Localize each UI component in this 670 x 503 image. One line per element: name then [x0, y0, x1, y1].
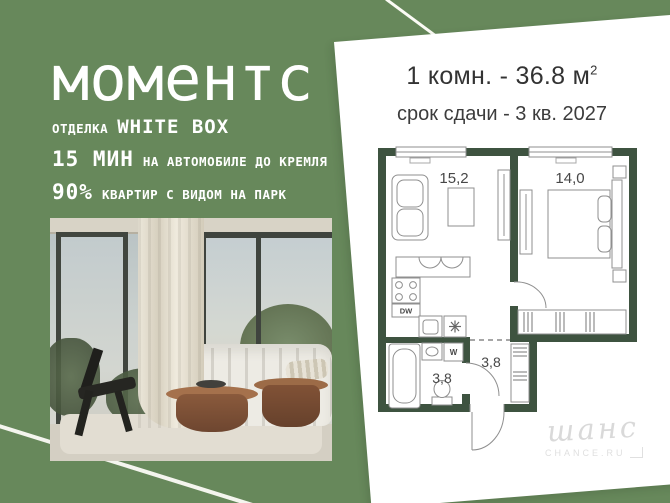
fridge-icon: [449, 321, 461, 333]
feature-drive-time: 15 МИН НА АВТОМОБИЛЕ ДО КРЕМЛЯ: [52, 147, 327, 171]
photo-coffee-table-base: [176, 394, 248, 432]
finish-value: WHITE BOX: [117, 116, 229, 138]
area-hallway: 3,8: [481, 354, 501, 370]
feature-drive-time-value: 15 МИН: [52, 147, 134, 171]
feature-park-view: 90% КВАРТИР С ВИДОМ НА ПАРК: [52, 180, 327, 204]
feature-park-view-value: 90%: [52, 180, 93, 204]
photo-side-table-base: [262, 385, 320, 427]
apartment-title-text: 1 комн. - 36.8 м: [406, 62, 590, 90]
feature-finish: ОТДЕЛКА WHITE BOX: [52, 116, 327, 138]
washer-label: W: [450, 348, 458, 357]
feature-park-view-label: КВАРТИР С ВИДОМ НА ПАРК: [102, 187, 287, 202]
area-bedroom: 14,0: [555, 170, 584, 187]
poster: моментс ОТДЕЛКА WHITE BOX 15 МИН НА АВТО…: [0, 0, 670, 503]
interior-photo: [50, 218, 332, 461]
square-meter-sup: 2: [590, 63, 598, 78]
bedroom-door-arc: [514, 282, 546, 308]
watermark-caption-text: CHANCE.RU: [545, 448, 626, 458]
dishwasher-label: DW: [400, 307, 413, 316]
watermark-caption: CHANCE.RU: [545, 447, 643, 458]
watermark-logo: шанс: [527, 409, 659, 450]
photo-table-decor: [196, 380, 226, 388]
finish-label: ОТДЕЛКА: [52, 121, 108, 136]
watermark-bracket: [630, 447, 643, 458]
feature-list: ОТДЕЛКА WHITE BOX 15 МИН НА АВТОМОБИЛЕ Д…: [52, 116, 327, 204]
feature-drive-time-label: НА АВТОМОБИЛЕ ДО КРЕМЛЯ: [143, 154, 328, 169]
diagonal-line-top: [385, 0, 437, 37]
area-bathroom: 3,8: [432, 370, 452, 386]
area-living: 15,2: [439, 170, 468, 187]
apartment-title: 1 комн. - 36.8 м2: [347, 62, 657, 91]
entrance-door-arc: [472, 412, 504, 450]
completion-date: срок сдачи - 3 кв. 2027: [347, 103, 657, 126]
plan-bedroom-furniture: [514, 166, 626, 334]
brand-logo: моментс: [52, 48, 313, 110]
